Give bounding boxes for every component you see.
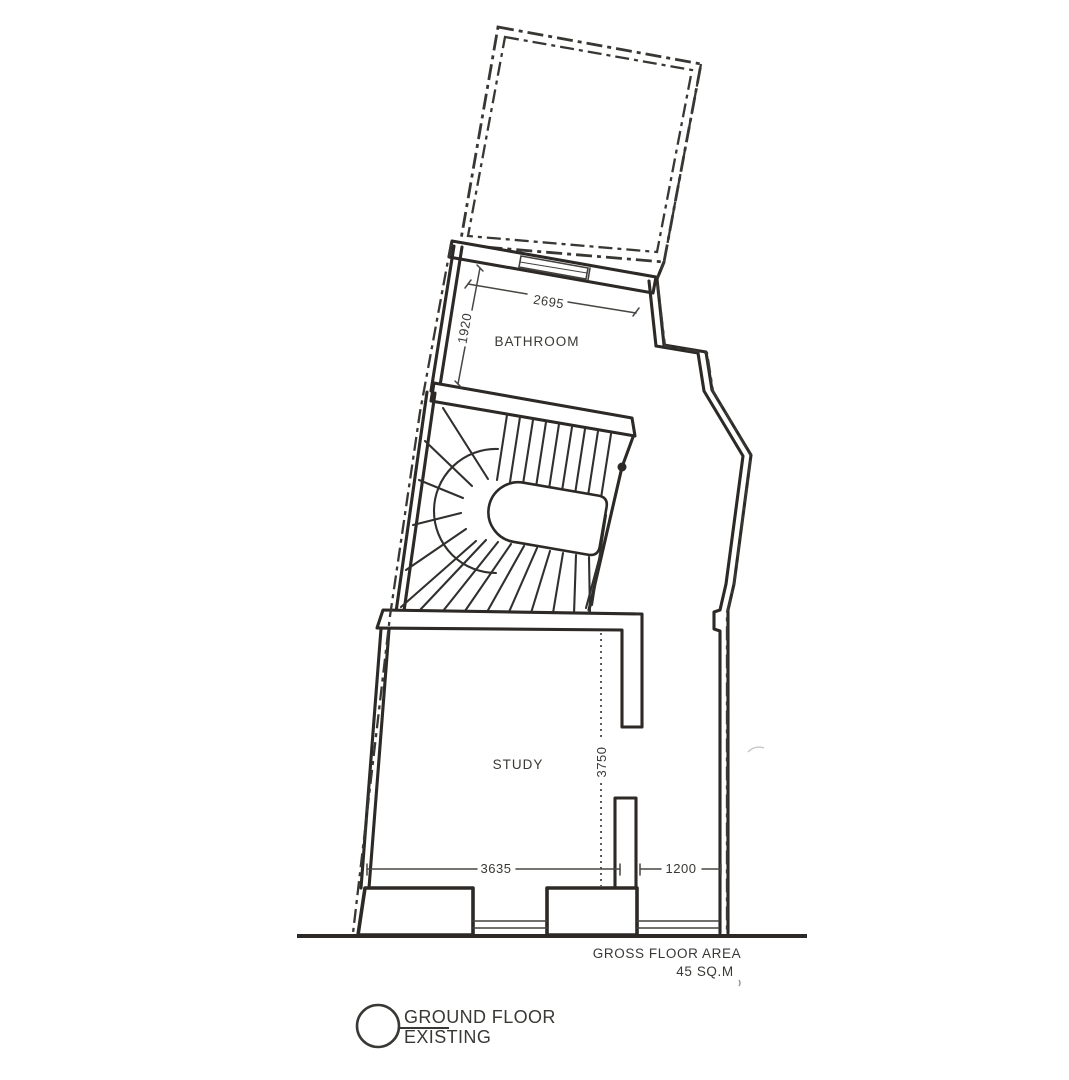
gross-floor-area-value: 45 SQ.M (676, 964, 733, 979)
dim-1200: 1200 (640, 861, 721, 876)
floor-plan-drawing: BATHROOM 2695 1920 (0, 0, 1069, 1080)
legend-circle-icon (357, 1005, 399, 1047)
stair-point-marker (618, 463, 627, 472)
gross-floor-area-label: GROSS FLOOR AREA (593, 946, 741, 961)
gross-floor-area-note: GROSS FLOOR AREA 45 SQ.M (593, 946, 741, 986)
dim-3750: 3750 (594, 633, 609, 886)
floor-plan-page: BATHROOM 2695 1920 (0, 0, 1069, 1080)
legend: GROUND FLOOR EXISTING (357, 1005, 556, 1047)
study-label: STUDY (493, 757, 544, 772)
dim-3750-text: 3750 (594, 747, 609, 778)
top-room-outline (460, 27, 701, 262)
study: STUDY 3750 3635 1200 (358, 610, 721, 935)
dim-1200-text: 1200 (666, 861, 697, 876)
scan-artifact (748, 747, 764, 752)
stair-winders-left (401, 408, 488, 607)
legend-title: GROUND FLOOR (404, 1007, 556, 1027)
right-boundary-wall (656, 64, 751, 933)
dim-1920-text: 1920 (454, 312, 474, 345)
left-boundary-line (353, 244, 451, 933)
bathroom-label: BATHROOM (495, 334, 580, 349)
dim-3635: 3635 (367, 861, 620, 876)
dim-2695-text: 2695 (532, 292, 565, 312)
dim-3635-text: 3635 (481, 861, 512, 876)
scan-mark (739, 980, 740, 986)
legend-subtitle: EXISTING (404, 1027, 491, 1047)
